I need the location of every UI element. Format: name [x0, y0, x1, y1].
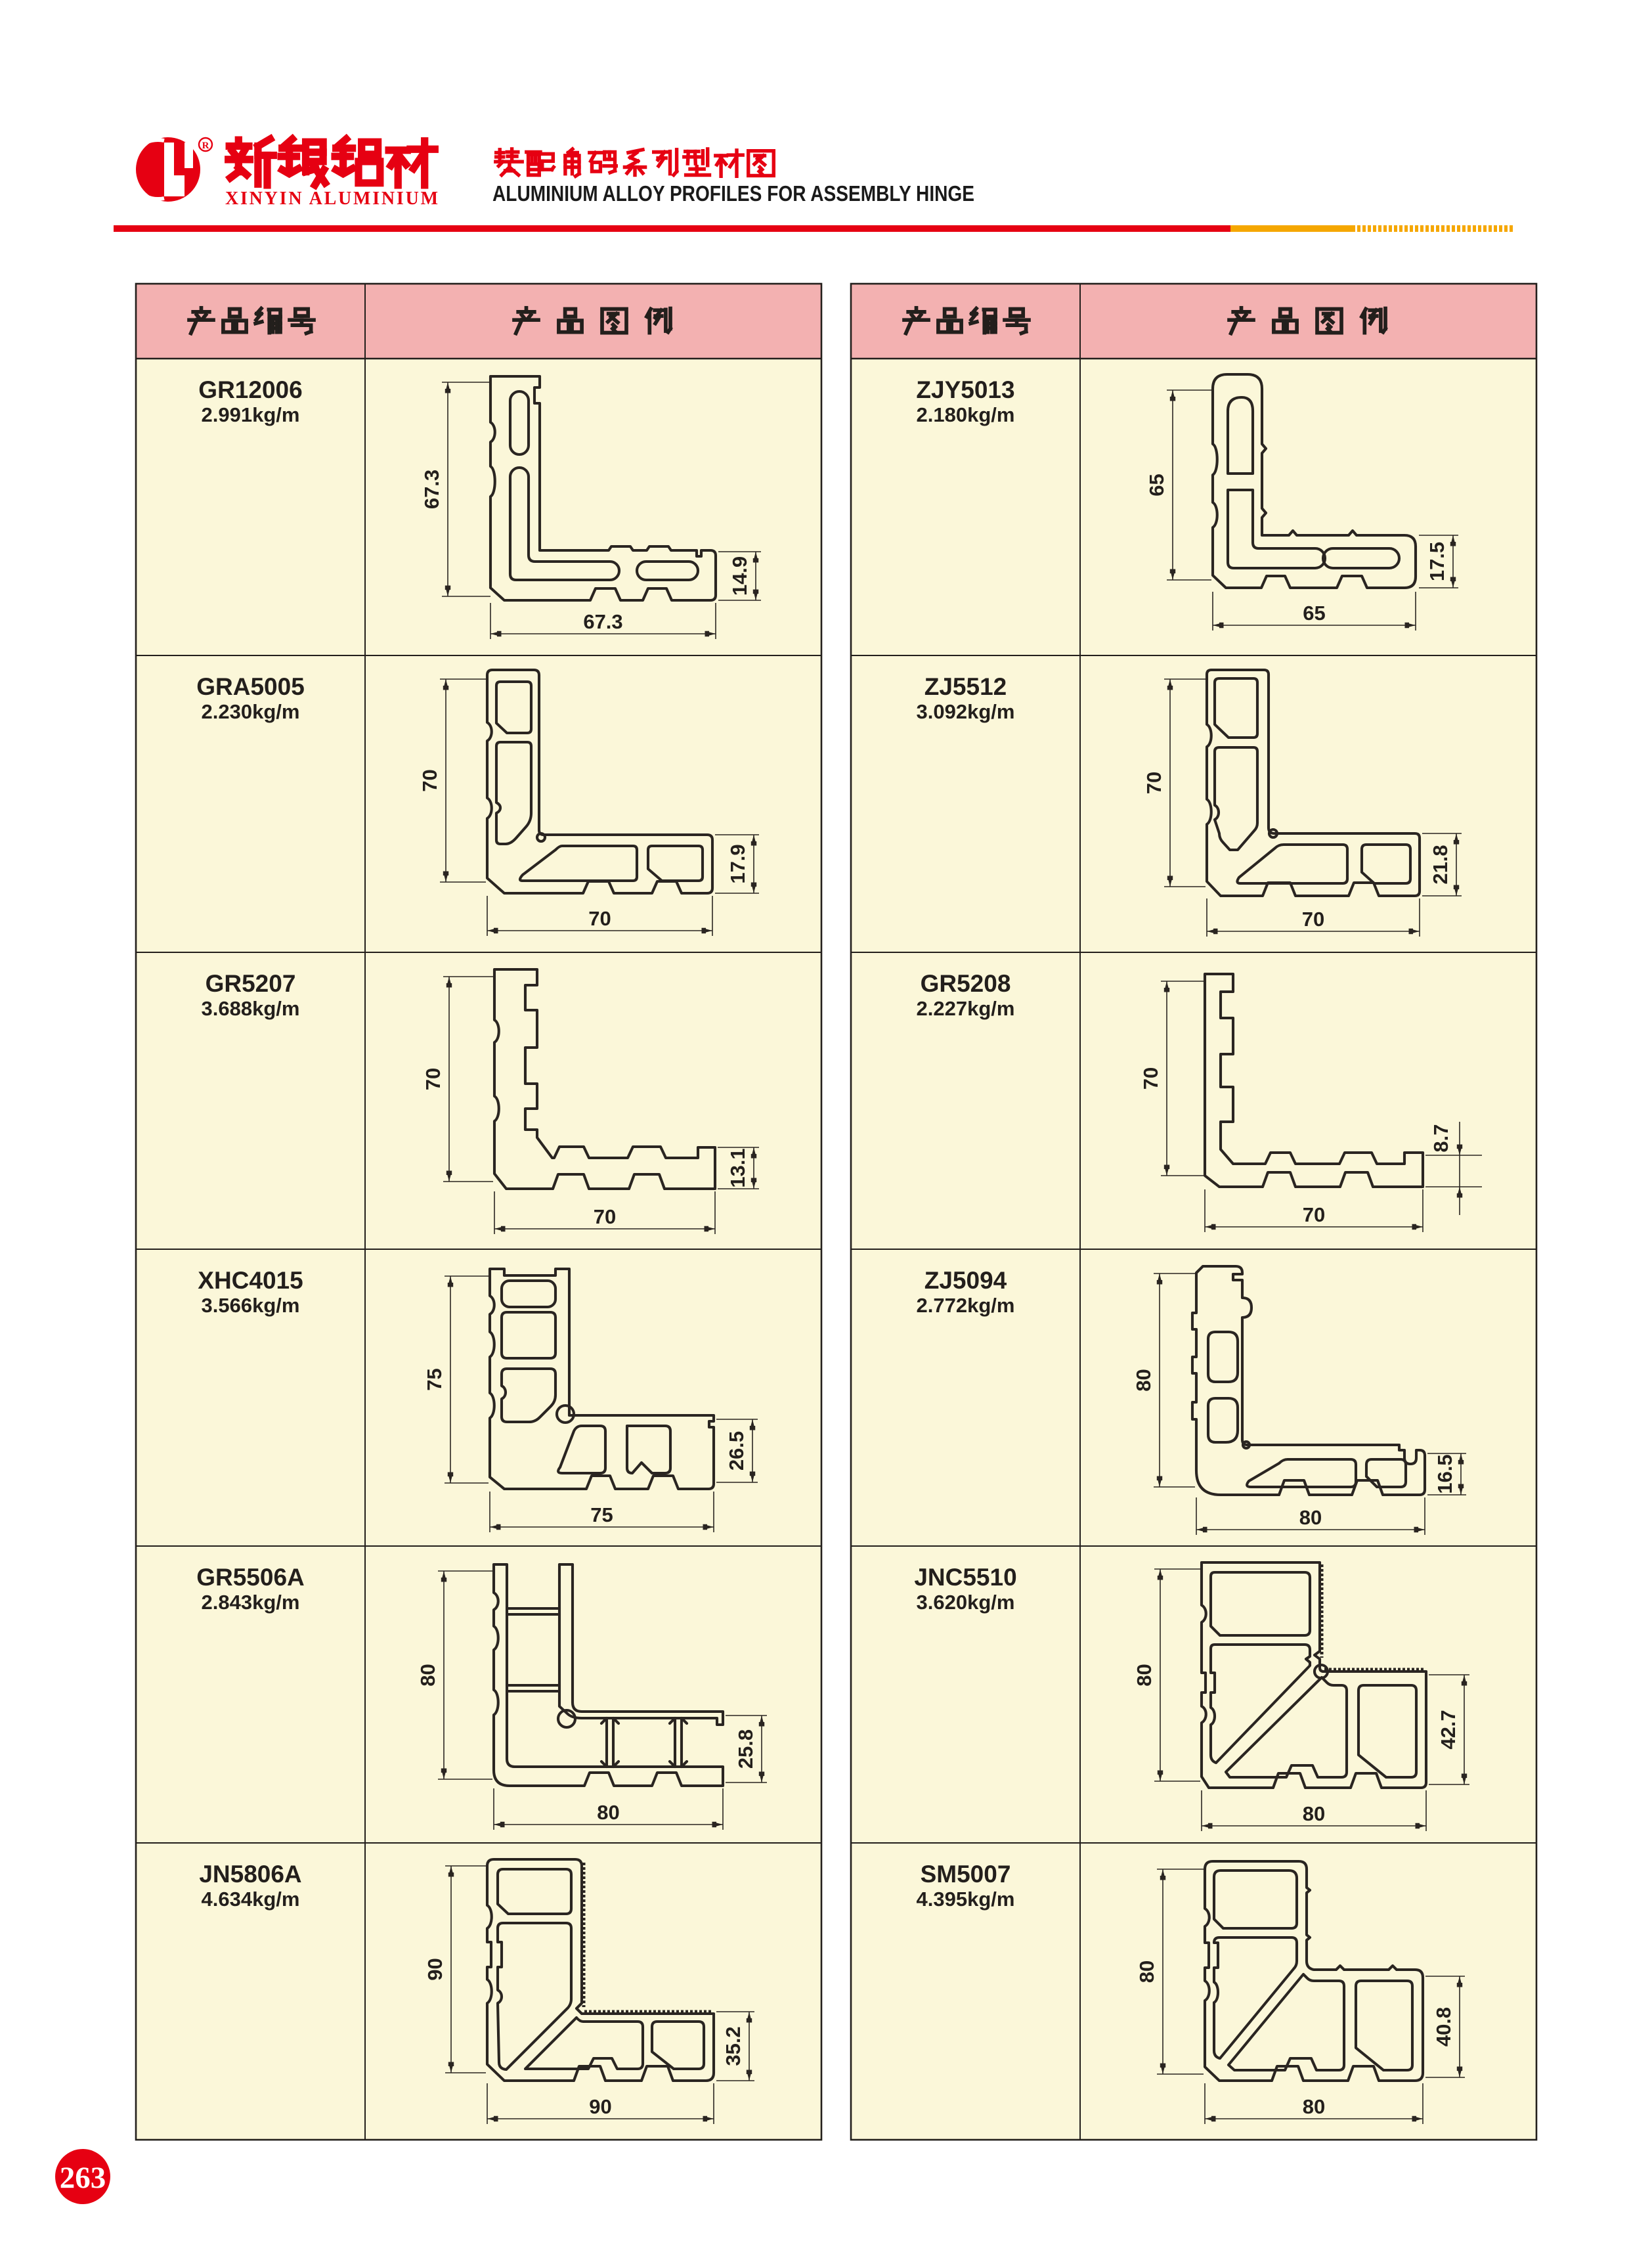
svg-text:70: 70 [1139, 1067, 1162, 1090]
svg-text:2.772kg/m: 2.772kg/m [917, 1294, 1015, 1317]
svg-text:ALUMINIUM ALLOY PROFILES FOR A: ALUMINIUM ALLOY PROFILES FOR ASSEMBLY HI… [492, 181, 974, 206]
svg-text:80: 80 [597, 1801, 619, 1824]
svg-text:XINYIN ALUMINIUM: XINYIN ALUMINIUM [225, 188, 438, 209]
svg-text:3.092kg/m: 3.092kg/m [917, 700, 1015, 723]
svg-text:17.5: 17.5 [1425, 542, 1448, 581]
svg-text:65: 65 [1303, 602, 1325, 625]
svg-text:XHC4015: XHC4015 [198, 1267, 303, 1294]
svg-text:75: 75 [590, 1503, 613, 1526]
svg-text:2.843kg/m: 2.843kg/m [202, 1591, 300, 1614]
svg-text:2.227kg/m: 2.227kg/m [917, 997, 1015, 1020]
svg-text:ZJ5094: ZJ5094 [924, 1267, 1007, 1294]
svg-text:90: 90 [589, 2095, 611, 2118]
svg-text:GR5506A: GR5506A [196, 1564, 305, 1591]
svg-text:263: 263 [60, 2161, 106, 2195]
svg-text:80: 80 [1299, 1506, 1322, 1529]
svg-text:21.8: 21.8 [1429, 845, 1452, 884]
svg-text:16.5: 16.5 [1433, 1454, 1456, 1494]
svg-text:GR5207: GR5207 [206, 970, 296, 997]
svg-text:4.634kg/m: 4.634kg/m [202, 1888, 300, 1911]
svg-text:70: 70 [418, 769, 441, 791]
svg-text:25.8: 25.8 [734, 1729, 757, 1769]
svg-text:ZJ5512: ZJ5512 [924, 673, 1007, 700]
svg-text:3.688kg/m: 3.688kg/m [202, 997, 300, 1020]
svg-text:3.566kg/m: 3.566kg/m [202, 1294, 300, 1317]
svg-text:90: 90 [424, 1958, 446, 1980]
svg-text:ZJY5013: ZJY5013 [916, 376, 1014, 403]
svg-text:JN5806A: JN5806A [199, 1861, 301, 1888]
svg-text:2.230kg/m: 2.230kg/m [202, 700, 300, 723]
svg-text:70: 70 [422, 1068, 445, 1090]
svg-text:42.7: 42.7 [1437, 1710, 1460, 1749]
svg-text:40.8: 40.8 [1432, 2007, 1455, 2047]
svg-text:3.620kg/m: 3.620kg/m [917, 1591, 1015, 1614]
svg-text:GR12006: GR12006 [198, 376, 302, 403]
svg-text:70: 70 [1142, 772, 1165, 794]
svg-text:80: 80 [1133, 1664, 1156, 1686]
svg-text:65: 65 [1145, 474, 1168, 496]
svg-text:SM5007: SM5007 [921, 1861, 1011, 1888]
svg-text:70: 70 [1302, 908, 1324, 931]
svg-text:26.5: 26.5 [725, 1431, 748, 1471]
svg-text:14.9: 14.9 [728, 556, 751, 596]
svg-text:80: 80 [1132, 1369, 1155, 1391]
svg-text:8.7: 8.7 [1429, 1124, 1452, 1152]
svg-text:GR5208: GR5208 [921, 970, 1011, 997]
svg-text:67.3: 67.3 [420, 470, 443, 509]
svg-text:70: 70 [588, 907, 611, 930]
svg-text:80: 80 [416, 1664, 439, 1686]
svg-text:17.9: 17.9 [726, 844, 749, 883]
svg-text:2.180kg/m: 2.180kg/m [917, 403, 1015, 426]
svg-text:67.3: 67.3 [583, 610, 622, 633]
svg-text:2.991kg/m: 2.991kg/m [202, 403, 300, 426]
svg-text:80: 80 [1303, 2095, 1325, 2118]
svg-text:70: 70 [594, 1205, 616, 1228]
svg-text:GRA5005: GRA5005 [196, 673, 305, 700]
svg-text:80: 80 [1135, 1960, 1158, 1983]
svg-text:75: 75 [423, 1368, 446, 1390]
svg-text:80: 80 [1303, 1802, 1325, 1825]
svg-text:4.395kg/m: 4.395kg/m [917, 1888, 1015, 1911]
svg-text:13.1: 13.1 [726, 1148, 749, 1187]
svg-text:35.2: 35.2 [722, 2026, 745, 2066]
svg-text:R: R [202, 141, 209, 151]
svg-text:70: 70 [1303, 1203, 1325, 1226]
svg-text:JNC5510: JNC5510 [914, 1564, 1016, 1591]
